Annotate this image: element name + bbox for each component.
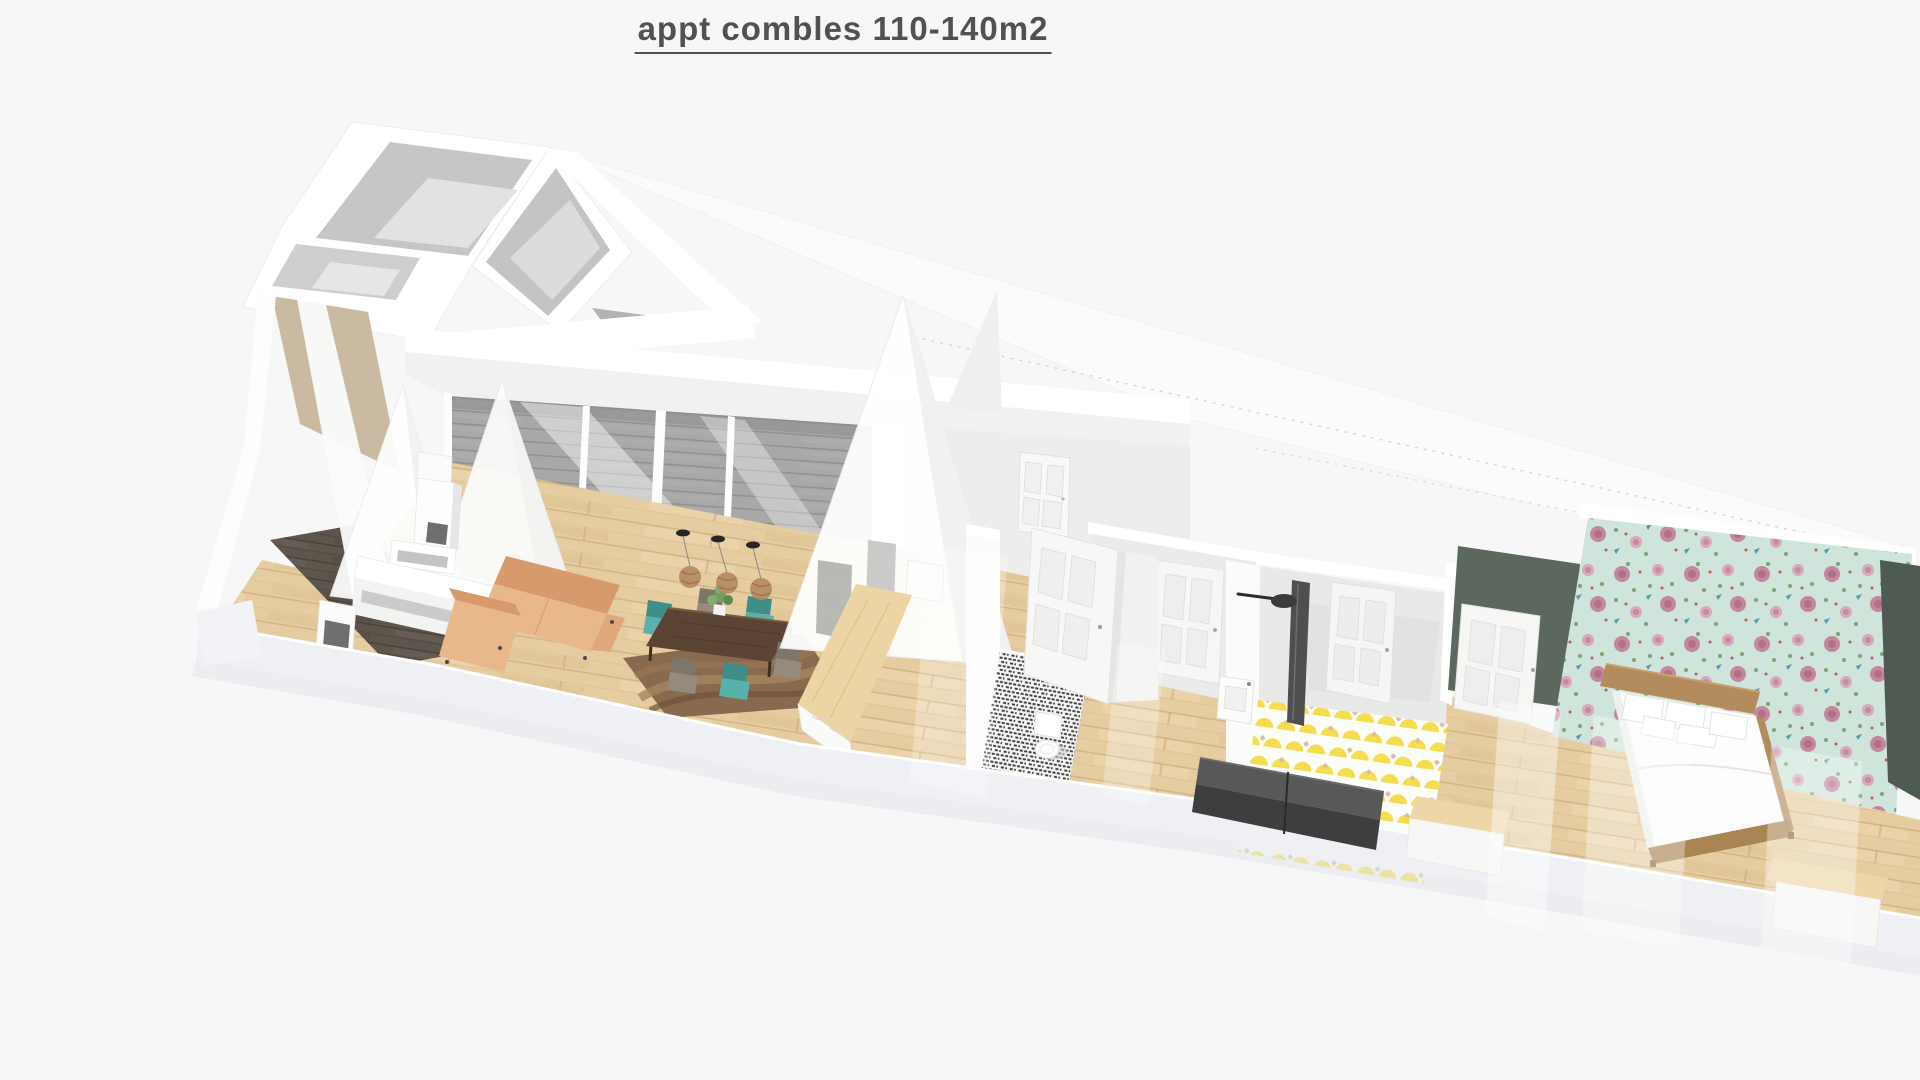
- bathroom-sink: [1217, 676, 1254, 724]
- floorplan-page: appt combles 110-140m2: [0, 0, 1920, 1080]
- door-bathroom-back: [1326, 582, 1396, 704]
- door-wc-open: [1024, 528, 1126, 704]
- front-wall-left-cap: [196, 600, 262, 666]
- floorplan-3d-render: [0, 0, 1920, 1080]
- door-hall-back: [1018, 452, 1070, 538]
